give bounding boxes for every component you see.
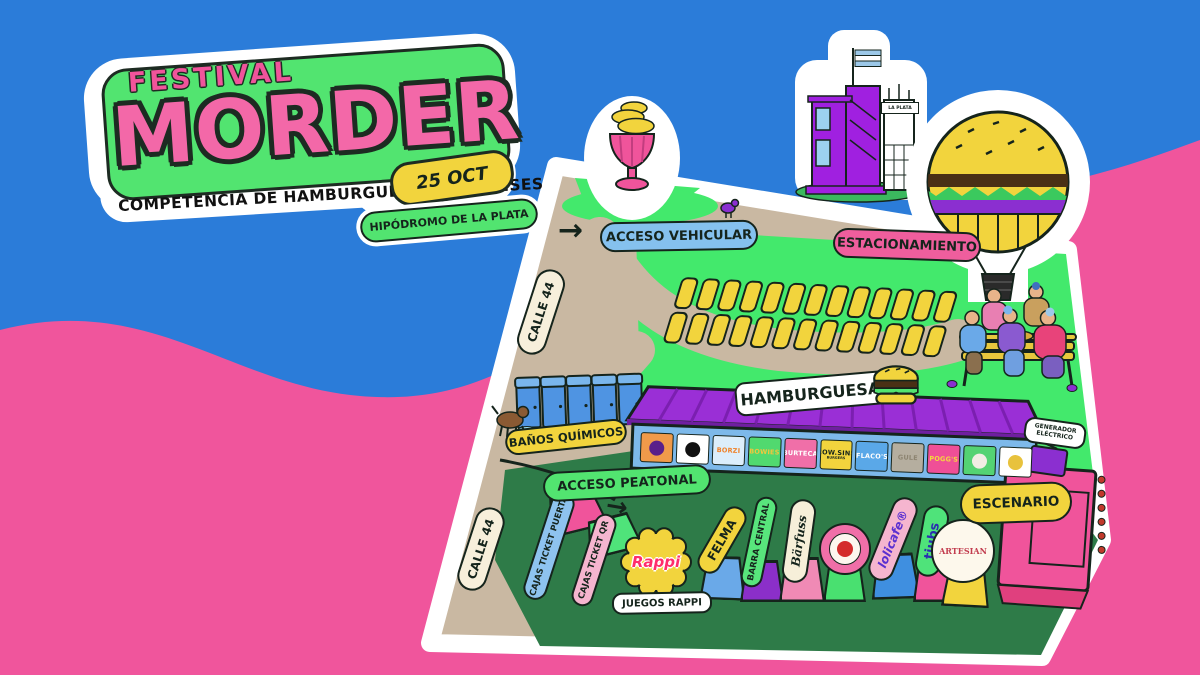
black-circle-logo-icon: [685, 441, 701, 457]
vendor-sign-borzi: BORZI: [711, 435, 745, 466]
portable-toilets: [515, 374, 644, 428]
white-circle-logo-icon: [972, 453, 988, 469]
portable-toilet: [566, 375, 593, 426]
vendor-sign-yellow-burger-logo: [998, 446, 1032, 477]
badge-ring: [829, 533, 861, 565]
vendor-sign-white-circle-logo: [963, 445, 997, 476]
festival-map-poster: CAJAS TICKET PUERTACAJAS TICKET QRFELMAB…: [0, 0, 1200, 675]
vendor-name: BORZI: [717, 447, 741, 454]
vendor-name: POGG'S: [929, 455, 958, 463]
rappi-badge: Rappi: [620, 526, 692, 598]
vendor-name: FLACO'S: [856, 452, 888, 460]
vendor-subtitle: BURGERS: [827, 456, 846, 460]
burger-trophy: [584, 96, 680, 220]
vendor-name: GULE: [898, 454, 918, 461]
round-striped-badge-icon: [819, 523, 871, 575]
vendor-sign-black-circle-logo: [676, 433, 710, 464]
burger-icon: [872, 364, 920, 408]
label-acceso-vehicular: ACCESO VEHICULAR: [600, 220, 758, 253]
vendor-sign-cow-sins: COW.SINSBURGERS: [819, 439, 853, 470]
pedestrian-access-arrow-icon: →: [604, 492, 630, 521]
badge-core: [837, 541, 853, 557]
label-estacionamiento: ESTACIONAMIENTO: [833, 227, 982, 262]
pigeon-icon: [947, 381, 957, 388]
label-la-plata-tower: LA PLATA: [881, 102, 919, 114]
rappi-logo-text: Rappi: [620, 526, 692, 598]
portable-toilet: [540, 376, 567, 427]
vendor-sign-gule: GULE: [891, 442, 925, 473]
vehicular-access-arrow-icon: →: [558, 216, 583, 246]
generator-box: [1028, 446, 1067, 477]
argentine-flag: [855, 50, 881, 67]
stall-tag-artesian: ARTESIAN: [931, 519, 995, 583]
vendor-sign-flaco-s: FLACO'S: [855, 441, 889, 472]
yellow-burger-logo-icon: [1008, 454, 1024, 470]
label-escenario: ESCENARIO: [959, 481, 1072, 525]
vendor-sign-bowies: BOWIES: [747, 436, 781, 467]
vendor-sign-burteca: BURTECA: [783, 438, 817, 469]
vendor-sign-pogg-s: POGG'S: [927, 444, 961, 475]
vendor-sign-purple-glyph-logo: [640, 432, 674, 463]
portable-toilet: [591, 374, 618, 425]
vendor-name: BURTECA: [783, 449, 817, 457]
pigeon-icon: [1067, 385, 1077, 392]
label-juegos-rappi: JUEGOS RAPPI: [612, 591, 712, 615]
vendor-name: BOWIES: [749, 448, 780, 456]
purple-glyph-logo-icon: [649, 440, 665, 456]
